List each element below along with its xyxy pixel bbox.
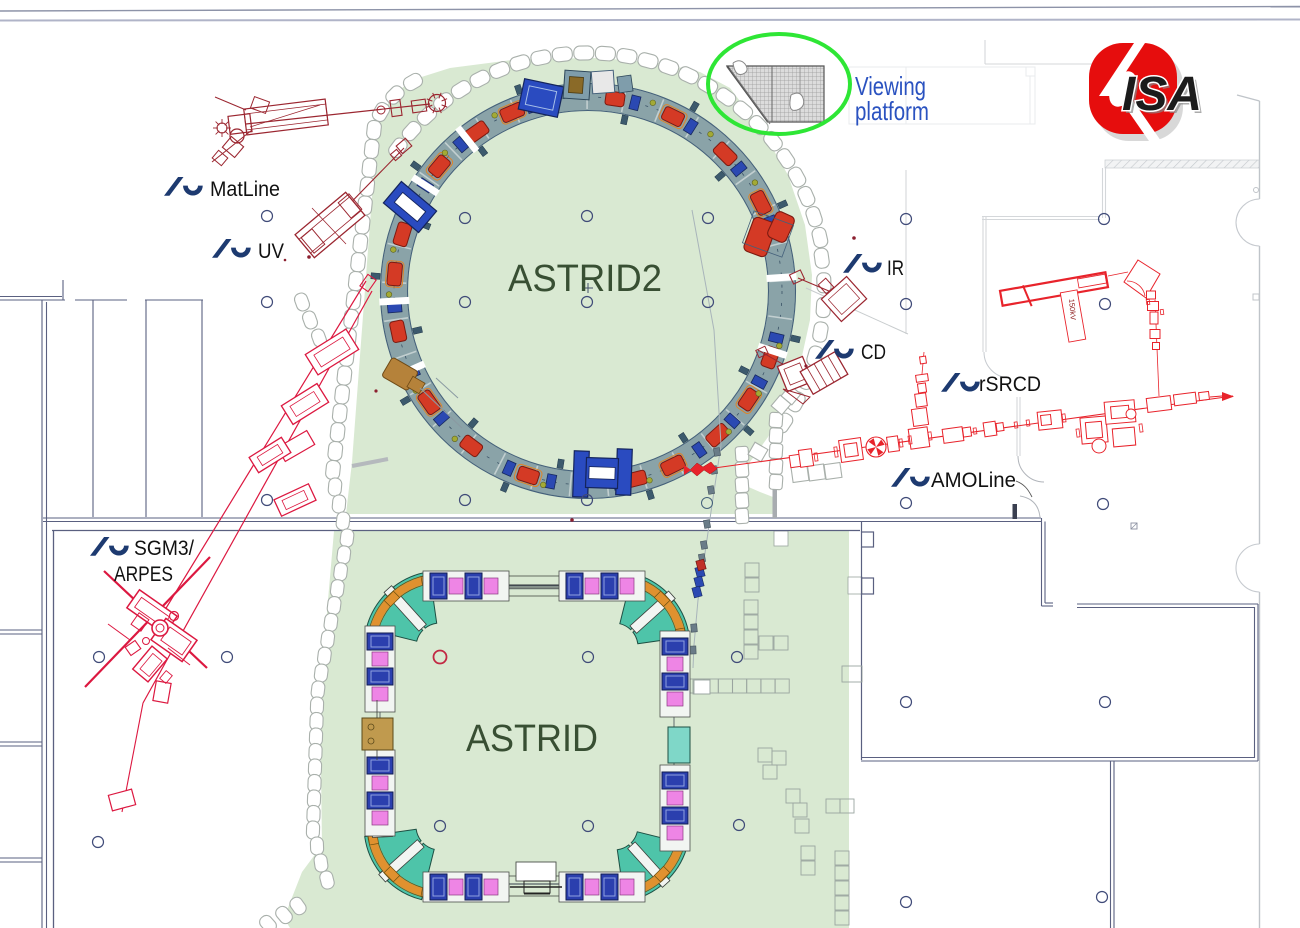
svg-text:150kV: 150kV bbox=[1067, 298, 1078, 320]
svg-text:ASTRID2: ASTRID2 bbox=[508, 258, 662, 300]
svg-text:IR: IR bbox=[887, 257, 904, 280]
svg-text:ARPES: ARPES bbox=[114, 563, 173, 586]
svg-text:rSRCD: rSRCD bbox=[979, 373, 1041, 396]
svg-text:platform: platform bbox=[855, 96, 929, 126]
svg-text:UV: UV bbox=[258, 240, 284, 263]
svg-text:SGM3/: SGM3/ bbox=[134, 537, 194, 560]
svg-text:ASTRID: ASTRID bbox=[466, 718, 598, 760]
svg-text:CD: CD bbox=[861, 341, 886, 364]
svg-text:MatLine: MatLine bbox=[210, 178, 280, 201]
svg-text:ISA: ISA bbox=[1122, 68, 1202, 121]
svg-text:AMOLine: AMOLine bbox=[931, 469, 1016, 492]
